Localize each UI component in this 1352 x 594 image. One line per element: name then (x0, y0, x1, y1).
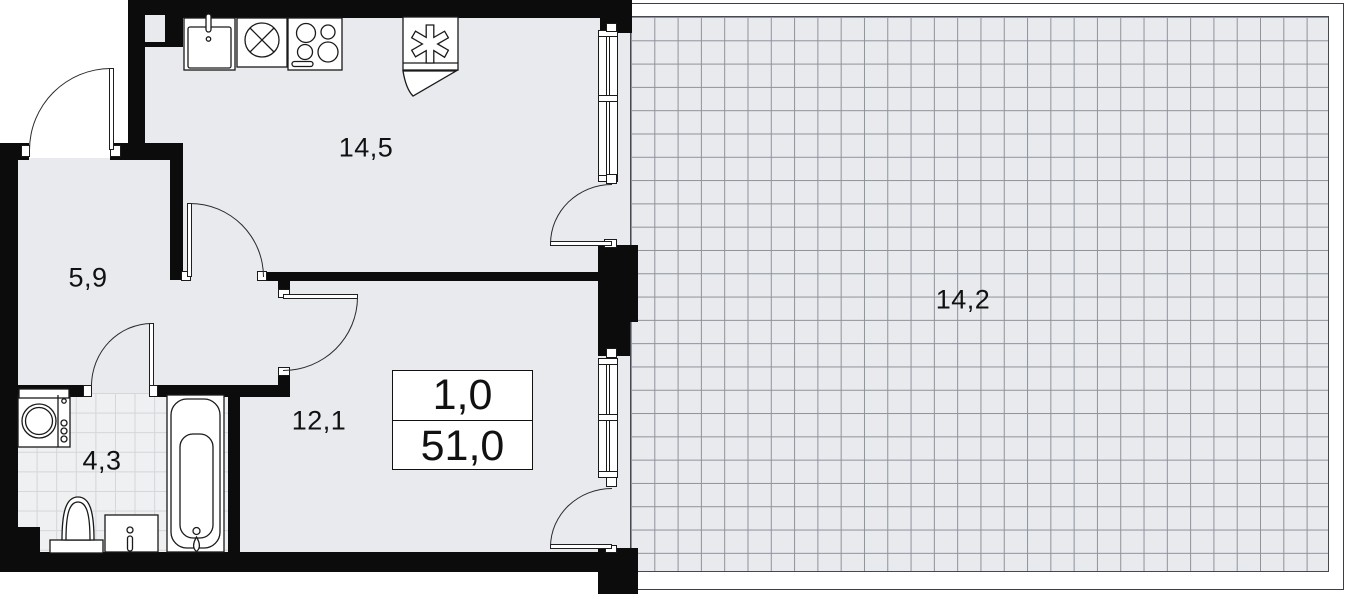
fixtures-layer (0, 0, 1352, 594)
stove-fixture (288, 18, 342, 70)
vanity-sink-fixture (105, 515, 158, 552)
room-label-terrace: 14,2 (936, 285, 991, 316)
room-label-living-room: 12,1 (292, 406, 347, 437)
apartment-rooms-count: 1,0 (393, 371, 532, 421)
hob-cross-fixture (237, 18, 287, 67)
apartment-info-box: 1,0 51,0 (392, 370, 533, 470)
toilet-fixture (50, 497, 103, 553)
floor-plan: 14,5 5,9 4,3 12,1 14,2 1,0 51,0 (0, 0, 1352, 594)
apartment-total-area: 51,0 (393, 421, 532, 471)
washing-machine-fixture (18, 389, 70, 447)
fridge-freezer-icon (403, 17, 458, 96)
bathtub-fixture (167, 395, 224, 552)
room-label-kitchen: 14,5 (339, 133, 394, 164)
sink-fixture (184, 14, 235, 70)
room-label-bathroom: 4,3 (82, 446, 121, 477)
room-label-hallway: 5,9 (68, 263, 107, 294)
